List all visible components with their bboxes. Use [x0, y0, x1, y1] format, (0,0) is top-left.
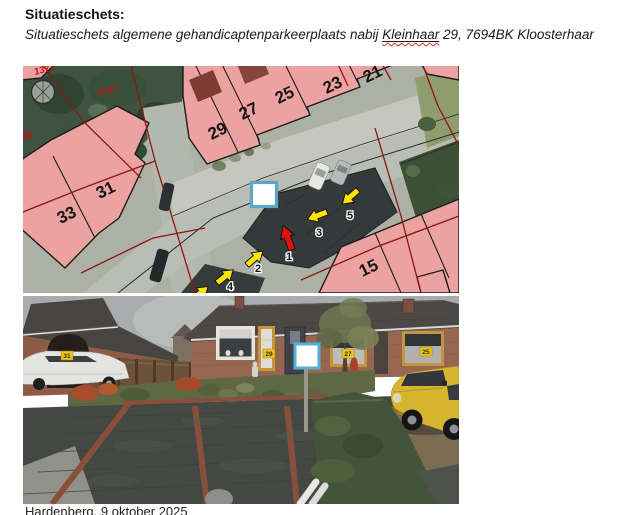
- house-badge-label: 25: [422, 349, 430, 356]
- garden-statue: [252, 366, 258, 377]
- arrow-label: 4: [227, 281, 234, 293]
- window-yellow-narrow: [258, 326, 275, 371]
- chimney: [235, 296, 244, 309]
- arrow-label: 2: [255, 263, 261, 275]
- aerial-map-svg: 1371 1747 48 29 27 25 23 21 33 31 15 1: [23, 66, 459, 293]
- house-badge-label: 31: [63, 353, 71, 360]
- page-subtitle: Situatieschets algemene gehandicaptenpar…: [25, 27, 594, 42]
- document-page: Situatieschets: Situatieschets algemene …: [0, 0, 635, 515]
- chimney: [403, 299, 414, 313]
- street-name-spellcheck: Kleinhaar: [382, 27, 439, 42]
- map-selection-marker: [252, 183, 277, 207]
- street-name-underlined: Kleinhaar: [382, 27, 439, 42]
- arrow-label: 5: [347, 210, 353, 222]
- house-badge-label: 29: [265, 351, 273, 358]
- subtitle-suffix: 29, 7694BK Kloosterhaar: [439, 27, 594, 42]
- photo-selection-marker: [295, 344, 319, 368]
- street-photo-svg: 31 29 27 25: [23, 296, 459, 504]
- arrow-label: 1: [286, 251, 292, 263]
- street-photo-image[interactable]: 31 29 27 25: [23, 296, 459, 504]
- subtitle-prefix: Situatieschets algemene gehandicaptenpar…: [25, 27, 382, 42]
- window-left: [216, 326, 255, 360]
- aerial-map-image[interactable]: 1371 1747 48 29 27 25 23 21 33 31 15 1: [23, 66, 459, 293]
- photo-sign-post: [304, 366, 308, 432]
- house-badge-label: 27: [344, 351, 352, 358]
- footer-date-line: Hardenberg, 9 oktober 2025: [25, 504, 188, 515]
- page-title: Situatieschets:: [25, 6, 125, 22]
- arrow-label: 3: [316, 227, 322, 239]
